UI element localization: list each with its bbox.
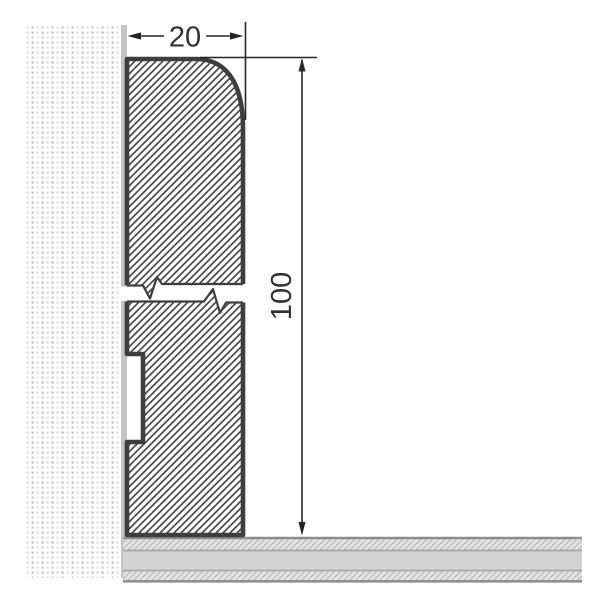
skirting-board-upper-section — [127, 59, 243, 299]
width-arrow-left — [128, 32, 142, 39]
height-arrow-top — [299, 58, 306, 72]
technical-drawing-canvas: 20 100 — [0, 0, 604, 604]
wall-stipple-area — [25, 25, 121, 578]
width-dimension-label: 20 — [169, 22, 201, 54]
floor-section — [123, 538, 582, 581]
break-gap-wall-mask — [120, 287, 128, 302]
skirting-board-lower-section — [127, 289, 243, 535]
floor-upper-hatch-layer — [123, 539, 582, 550]
height-arrow-bottom — [299, 522, 306, 536]
wall-section — [25, 25, 127, 578]
floor-lower-hatch-layer — [123, 571, 582, 580]
width-arrow-right — [230, 32, 244, 39]
skirting-upper-fill — [127, 59, 243, 299]
floor-core-layer — [123, 551, 582, 570]
technical-drawing-page: 20 100 — [0, 0, 604, 604]
height-dimension-label: 100 — [266, 272, 298, 320]
